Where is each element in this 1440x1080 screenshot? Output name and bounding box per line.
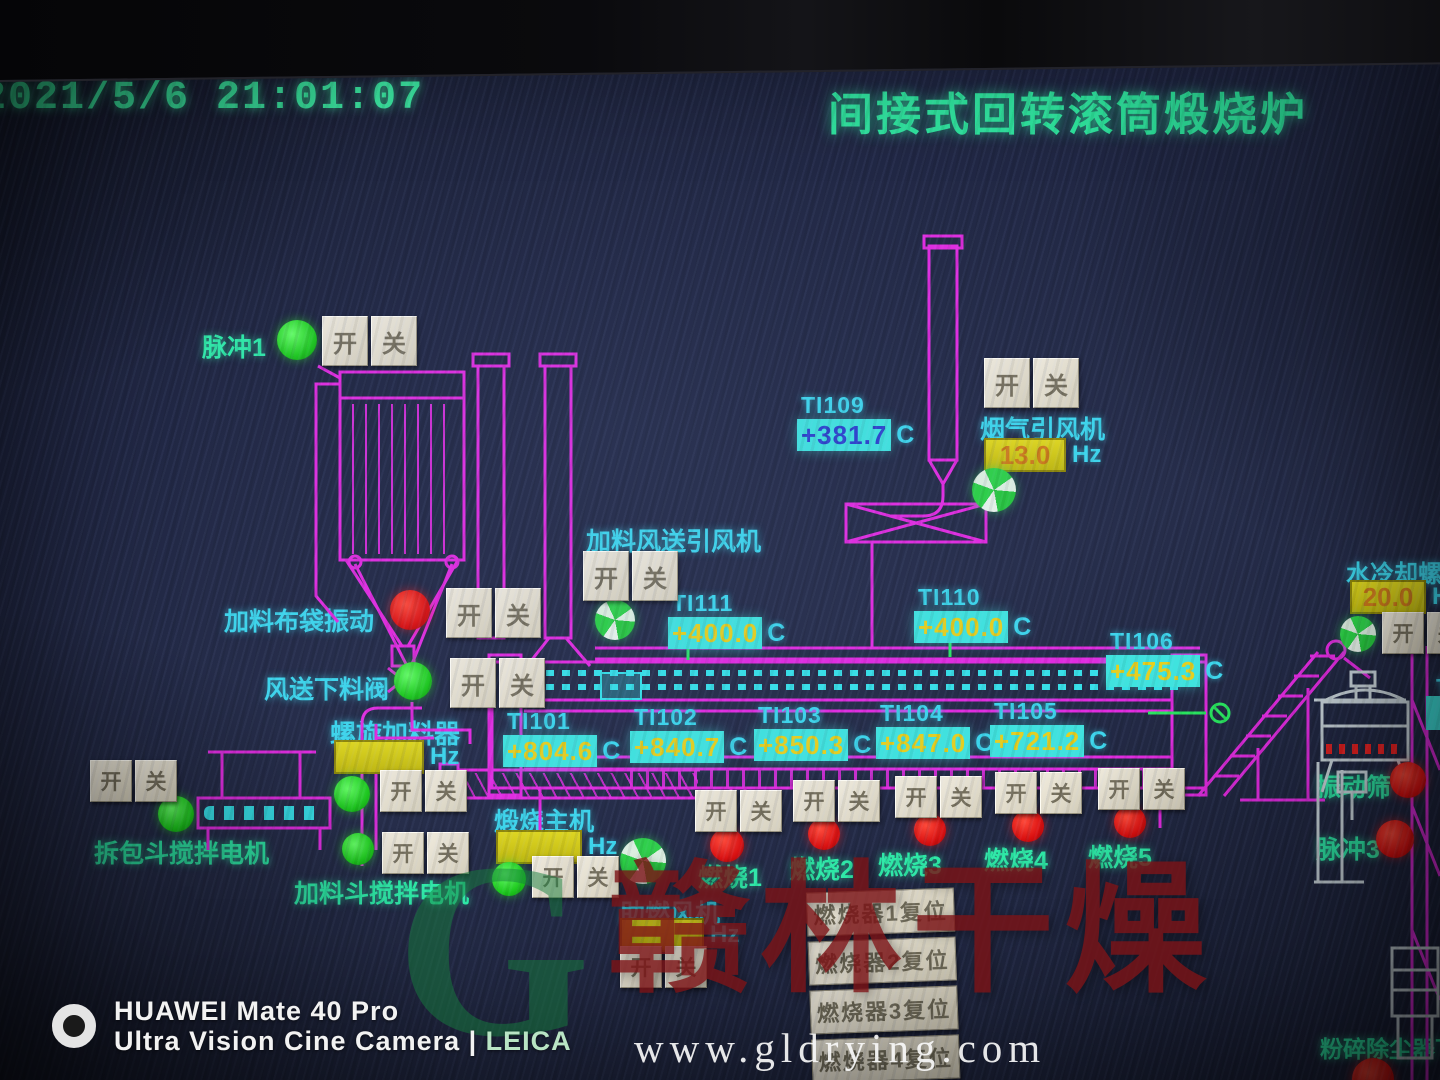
burner4-lamp [1012,810,1044,842]
air-feed-valve-switch: 开 关 [450,658,545,708]
feed-mixer-switch-a: 开 关 [380,770,467,812]
feed-air-fan-switch: 开 关 [583,551,678,601]
indicator-TI106: TI106 +475.3 C [1106,628,1223,687]
discharge-screw-hatch [460,773,698,797]
feed-air-fan-on-button[interactable]: 开 [583,551,629,601]
air-feed-valve-label: 风送下料阀 [264,670,389,706]
feed-mixer-a-off-button[interactable]: 关 [425,770,467,812]
flue-fan-frequency: 13.0 Hz [984,438,1101,472]
burner2-on-button[interactable]: 开 [793,780,835,822]
TI102-unit: C [729,733,747,762]
burner3-reset-button[interactable]: 燃烧器3复位 [809,985,958,1034]
TI101-tag: TI101 [507,708,620,735]
unpack-mixer-on-button[interactable]: 开 [90,760,132,802]
bag-vibration-label: 加料布袋振动 [224,602,374,638]
TI106-value: +475.3 [1106,655,1200,687]
TI109-unit: C [896,421,914,450]
burner1-reset-button[interactable]: 燃烧器1复位 [806,887,955,936]
TI103-unit: C [853,731,871,760]
burner4-on-button[interactable]: 开 [995,772,1037,814]
pulse1-switch: 开 关 [322,316,417,366]
feed-mixer-switch-b: 开 关 [382,832,469,874]
burner4-label: 燃烧4 [984,841,1048,877]
TI110-tag: TI110 [918,584,1031,611]
burner1-label: 燃烧1 [698,858,762,894]
indicator-TI101: TI101 +804.6 C [503,708,620,767]
water-screw-off-button[interactable]: 关 [1427,612,1440,654]
pulse1-lamp [277,320,317,360]
indicator-TI105: TI105 +721.2 C [990,698,1107,757]
feed-mixer-b-on-button[interactable]: 开 [382,832,424,874]
leica-logo: LEICA [486,1026,572,1056]
flue-fan-on-button[interactable]: 开 [984,358,1030,408]
TI105-tag: TI105 [994,698,1107,725]
combustion-fan-off-button[interactable]: 关 [665,946,707,988]
air-feed-valve-lamp [394,662,432,700]
unpack-mixer-off-button[interactable]: 关 [135,760,177,802]
feed-mixer-lamp-a [334,776,370,812]
combustion-fan-on-button[interactable]: 开 [620,946,662,988]
burner2-lamp [808,818,840,850]
burner4-off-button[interactable]: 关 [1040,772,1082,814]
indicator-TI110: TI110 +400.0 C [914,584,1031,643]
feed-air-fan-icon [595,600,635,640]
flue-fan-off-button[interactable]: 关 [1033,358,1079,408]
camera-watermark-line1: HUAWEI Mate 40 Pro [114,996,399,1027]
drum-inlet-box [600,672,642,700]
bag-vibration-off-button[interactable]: 关 [495,588,541,638]
water-screw-on-button[interactable]: 开 [1382,612,1424,654]
combustion-fan-frequency-unit: Hz [710,921,739,949]
screw-feeder-frequency: Hz [334,740,459,774]
burner4-switch: 开 关 [995,772,1082,814]
indicator-TI103: TI103 +850.3 C [754,702,871,761]
burner5-switch: 开 关 [1098,768,1185,810]
TI105-unit: C [1089,727,1107,756]
TI105-value: +721.2 [990,725,1084,757]
burner-reset-panel: 燃烧器1复位 燃烧器2复位 燃烧器3复位 燃烧器4复位 燃烧器5复位 [806,887,962,1080]
combustion-fan-switch: 开 关 [620,946,707,988]
indicator-TI109: TI109 +381.7 C [797,392,914,451]
main-drum-lamp [492,862,526,896]
screw-feeder-frequency-unit: Hz [430,743,459,771]
camera-watermark-line2: Ultra Vision Cine Camera | LEICA [114,1026,572,1057]
TI103-value: +850.3 [754,729,848,761]
feed-mixer-b-off-button[interactable]: 关 [427,832,469,874]
TI109-value: +381.7 [797,419,891,451]
unpack-mixer-switch: 开 关 [90,760,177,802]
sieve-heater-dots [1326,744,1402,754]
burner2-label: 燃烧2 [790,850,854,886]
screw-feeder-frequency-value [334,740,424,774]
TI106-tag: TI106 [1110,628,1223,655]
burner3-label: 燃烧3 [878,846,942,882]
burner3-on-button[interactable]: 开 [895,776,937,818]
main-drum-on-button[interactable]: 开 [532,856,574,898]
water-screw-frequency-value: 20.0 [1350,580,1426,614]
water-screw-frequency: 20.0 H [1350,580,1440,614]
edge-indicator-box [1426,696,1440,730]
TI102-tag: TI102 [634,704,747,731]
TI101-value: +804.6 [503,735,597,767]
water-screw-fan-icon [1340,616,1376,652]
unpack-mixer-label: 拆包斗搅拌电机 [94,834,269,870]
burner2-reset-button[interactable]: 燃烧器2复位 [808,936,957,985]
burner5-label: 燃烧5 [1088,838,1152,874]
TI104-tag: TI104 [880,700,993,727]
TI101-unit: C [602,737,620,766]
burner5-off-button[interactable]: 关 [1143,768,1185,810]
TI111-unit: C [767,619,785,648]
indicator-TI102: TI102 +840.7 C [630,704,747,763]
datetime-display: 2021/5/6 21:01:07 [0,76,424,121]
burner2-switch: 开 关 [793,780,880,822]
feed-mixer-a-on-button[interactable]: 开 [380,770,422,812]
pulse3-lamp [1376,820,1414,858]
air-feed-valve-on-button[interactable]: 开 [450,658,496,708]
TI110-value: +400.0 [914,611,1008,643]
indicator-TI111: TI111 +400.0 C [668,590,785,649]
unpack-screw-flights [204,806,324,820]
burner1-lamp [710,828,744,862]
flue-fan-icon [972,468,1016,512]
burner3-lamp [914,814,946,846]
water-screw-frequency-unit: H [1432,583,1440,611]
burner1-switch: 开 关 [695,790,782,832]
burner3-switch: 开 关 [895,776,982,818]
water-screw-switch: 开 关 [1382,612,1440,654]
bag-vibration-switch: 开 关 [446,588,541,638]
baghouse-bags-texture [352,404,454,554]
pulse3-label: 脉冲3 [1316,830,1380,866]
pulse1-on-button[interactable]: 开 [322,316,368,366]
main-drum-switch: 开 关 [532,856,619,898]
flue-fan-frequency-value: 13.0 [984,438,1066,472]
burner1-off-button[interactable]: 关 [740,790,782,832]
burner4-reset-button[interactable]: 燃烧器4复位 [811,1034,960,1080]
air-feed-valve-off-button[interactable]: 关 [499,658,545,708]
burner5-on-button[interactable]: 开 [1098,768,1140,810]
TI111-value: +400.0 [668,617,762,649]
vibrating-sieve-lamp [1390,762,1426,798]
monitor-bezel [0,0,1440,82]
bag-vibration-lamp [390,590,430,630]
burner1-on-button[interactable]: 开 [695,790,737,832]
combustion-fan-icon [620,838,666,884]
main-drum-off-button[interactable]: 关 [577,856,619,898]
camera-watermark-text: Ultra Vision Cine Camera | [114,1026,486,1056]
TI109-tag: TI109 [801,392,914,419]
burner3-off-button[interactable]: 关 [940,776,982,818]
page-title: 间接式回转滚筒煅烧炉 [828,78,1308,143]
camera-lens-icon [52,1004,96,1048]
feed-air-fan-off-button[interactable]: 关 [632,551,678,601]
TI103-tag: TI103 [758,702,871,729]
flue-fan-frequency-unit: Hz [1072,441,1101,469]
TI104-value: +847.0 [876,727,970,759]
burner5-lamp [1114,806,1146,838]
TI102-value: +840.7 [630,731,724,763]
pulse1-label: 脉冲1 [202,328,266,364]
bag-vibration-on-button[interactable]: 开 [446,588,492,638]
TI110-unit: C [1013,613,1031,642]
TI106-unit: C [1205,657,1223,686]
feed-mixer-lamp-b [342,833,374,865]
feed-hopper-mixer-label: 加料斗搅拌电机 [294,874,469,910]
vibrating-sieve-label: 振动筛 [1316,768,1391,804]
TI111-tag: TI111 [672,590,785,617]
indicator-TI104: TI104 +847.0 C [876,700,993,759]
hmi-screen-photo: 2021/5/6 21:01:07 间接式回转滚筒煅烧炉 脉冲1 开 关 开 关… [0,0,1440,1080]
flue-fan-switch: 开 关 [984,358,1079,408]
pulse1-off-button[interactable]: 关 [371,316,417,366]
burner2-off-button[interactable]: 关 [838,780,880,822]
